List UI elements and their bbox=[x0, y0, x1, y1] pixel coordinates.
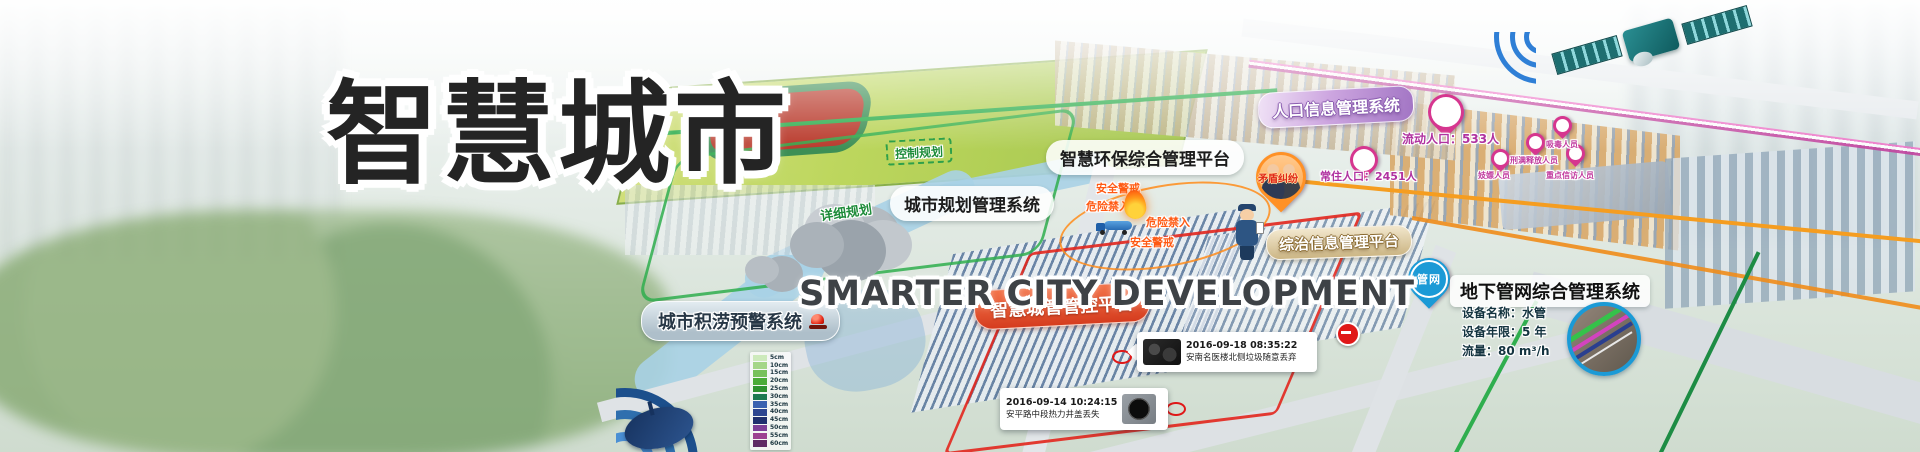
pipe-pin-label: 管网 bbox=[1410, 260, 1448, 298]
event-time: 2016-09-14 10:24:15 bbox=[1006, 396, 1117, 410]
group-pin-label: 刑满释放人员 bbox=[1510, 155, 1558, 166]
legend-row: 25cm bbox=[753, 385, 788, 393]
label-governance-platform: 综治信息管理平台 bbox=[1266, 224, 1413, 260]
hazard-label: 安全警戒 bbox=[1130, 234, 1174, 250]
rain-cloud-icon bbox=[790, 222, 844, 268]
hazard-label: 危险禁入 bbox=[1146, 214, 1190, 230]
event-callout-manhole: 2016-09-14 10:24:15 安平路中段热力井盖丢失 bbox=[1000, 388, 1168, 430]
legend-row: 60cm bbox=[753, 440, 788, 448]
satellite-icon bbox=[1545, 0, 1775, 105]
satellite-panel bbox=[1681, 5, 1752, 45]
group-pin-label: 吸毒人员 bbox=[1546, 139, 1578, 150]
tanker-truck-icon bbox=[1096, 221, 1132, 235]
conflict-pin-label: 矛盾纠纷 bbox=[1258, 170, 1298, 185]
rain-cloud-icon bbox=[745, 256, 779, 284]
control-planning-box: 控制规划 bbox=[885, 137, 952, 165]
legend-row: 10cm bbox=[753, 362, 788, 370]
environment-label: 智慧环保综合管理平台 bbox=[1060, 150, 1230, 170]
smart-city-banner[interactable]: 智慧城市 智慧城市 SMARTER CITY DEVELOPMENT SMART… bbox=[0, 0, 1920, 452]
urban-planning-label: 城市规划管理系统 bbox=[904, 196, 1040, 216]
resident-population-label: 常住人口：2451人 bbox=[1320, 168, 1417, 184]
event-time: 2016-09-18 08:35:22 bbox=[1186, 339, 1297, 353]
page-title: 智慧城市 智慧城市 bbox=[326, 74, 790, 197]
pipe-detail-age: 设备年限：5 年 bbox=[1462, 323, 1547, 340]
legend-row: 30cm bbox=[753, 393, 788, 401]
no-entry-sign-icon bbox=[1336, 322, 1360, 346]
legend-row: 35cm bbox=[753, 401, 788, 409]
label-pipe-network-system: 地下管网综合管理系统 bbox=[1450, 275, 1650, 307]
label-urban-planning-system: 城市规划管理系统 bbox=[890, 186, 1054, 221]
pipe-inset-photo bbox=[1567, 302, 1641, 376]
page-subtitle-text: SMARTER CITY DEVELOPMENT bbox=[799, 274, 1415, 314]
legend-row: 5cm bbox=[753, 354, 788, 362]
avatar bbox=[1431, 97, 1461, 127]
manhole-photo bbox=[1122, 394, 1156, 424]
legend-row: 15cm bbox=[753, 370, 788, 378]
flood-depth-legend: 5cm 10cm 15cm 20cm 25cm 30cm 35cm 40cm 4… bbox=[750, 352, 791, 450]
garbage-photo bbox=[1143, 339, 1181, 365]
page-subtitle: SMARTER CITY DEVELOPMENT SMARTER CITY DE… bbox=[799, 274, 1415, 314]
map-forest bbox=[0, 210, 670, 452]
event-target-marker bbox=[1166, 402, 1186, 416]
pipe-detail-flow: 流量：80 m³/h bbox=[1462, 342, 1550, 359]
legend-row: 55cm bbox=[753, 432, 788, 440]
event-callout-garbage: 2016-09-18 08:35:22 安南名医楼北侧垃圾随意丢弃 bbox=[1137, 332, 1317, 372]
pipe-detail-name: 设备名称：水管 bbox=[1462, 304, 1546, 321]
satellite-panel bbox=[1551, 35, 1622, 75]
floating-population-label: 流动人口：533人 bbox=[1402, 130, 1499, 147]
policeman-figure bbox=[1232, 204, 1262, 262]
page-title-text: 智慧城市 bbox=[326, 70, 790, 200]
population-label: 人口信息管理系统 bbox=[1272, 96, 1401, 122]
legend-row: 50cm bbox=[753, 424, 788, 432]
event-desc: 安南名医楼北侧垃圾随意丢弃 bbox=[1186, 353, 1297, 365]
label-environment-platform: 智慧环保综合管理平台 bbox=[1046, 140, 1244, 175]
control-planning-label: 控制规划 bbox=[895, 145, 944, 161]
legend-row: 45cm bbox=[753, 416, 788, 424]
legend-row: 40cm bbox=[753, 409, 788, 417]
event-desc: 安平路中段热力井盖丢失 bbox=[1006, 410, 1117, 422]
governance-label: 综治信息管理平台 bbox=[1279, 232, 1400, 254]
legend-row: 20cm bbox=[753, 377, 788, 385]
pipe-network-label: 地下管网综合管理系统 bbox=[1460, 282, 1640, 303]
siren-icon bbox=[809, 314, 827, 329]
flood-warning-label: 城市积涝预警系统 bbox=[658, 308, 802, 334]
group-pin-label: 妓嫖人员 bbox=[1478, 170, 1510, 181]
signal-waves-icon bbox=[1474, 32, 1536, 94]
group-pin-label: 重点信访人员 bbox=[1546, 170, 1594, 181]
